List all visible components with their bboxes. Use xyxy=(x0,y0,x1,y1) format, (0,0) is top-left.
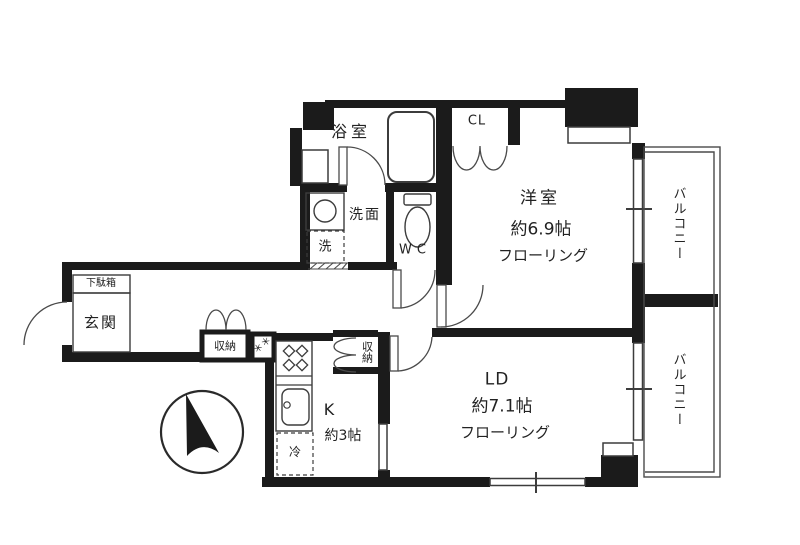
westernroom-door-leaf xyxy=(437,285,446,327)
ld-size: 約7.1帖 xyxy=(471,399,532,416)
cl-label: CL xyxy=(468,115,486,128)
wc-label: WC xyxy=(399,244,431,257)
westernroom-door-arc xyxy=(441,285,483,327)
vanity-box xyxy=(306,193,344,230)
toilet-bowl-icon xyxy=(405,207,430,247)
balcony-lower-label: バルコニー xyxy=(672,353,685,428)
ld-floor: フローリング xyxy=(460,426,550,441)
hall-storage-bifold-door xyxy=(206,310,246,330)
wc-door-leaf xyxy=(393,270,401,308)
bath-label: 浴室 xyxy=(331,124,371,140)
washing-machine-label: 洗 xyxy=(318,241,331,254)
wc-door-arc xyxy=(401,270,435,308)
western-room-name: 洋室 xyxy=(520,191,560,208)
kitchen-storage-label: 収納 xyxy=(362,341,373,363)
bath-door-arc xyxy=(347,147,385,185)
kitchen-name: K xyxy=(324,402,335,418)
bathtub-icon xyxy=(388,112,434,182)
window-ld-south xyxy=(490,479,585,486)
sink-icon xyxy=(314,200,336,222)
ld-name: LD xyxy=(485,372,510,389)
shoe-box-label: 下駄箱 xyxy=(86,279,116,289)
window-corner-notch xyxy=(603,443,633,456)
window-ld-balcony xyxy=(634,343,643,440)
western-room-size: 約6.9帖 xyxy=(510,222,571,239)
bath-door-leaf xyxy=(339,147,347,185)
kitchen-size: 約3帖 xyxy=(325,429,362,443)
floor-plan: 浴室 洗面 洗 WC CL 洋室 約6.9帖 フローリング LD 約7.1帖 フ… xyxy=(0,0,800,545)
balcony-upper-label: バルコニー xyxy=(672,187,685,262)
window-westernroom-balcony xyxy=(634,159,643,263)
washroom-sliding-door xyxy=(308,263,348,269)
ld-door-arc xyxy=(398,337,432,371)
entry-door-arc xyxy=(24,302,67,345)
toilet-tank-icon xyxy=(404,194,431,205)
hall-storage-label: 収納 xyxy=(214,341,236,352)
stove-burners-icon xyxy=(283,345,307,370)
kitchen-ld-opening xyxy=(379,424,387,470)
ld-door-leaf xyxy=(390,336,398,371)
window-top-right xyxy=(568,127,630,143)
kitchen-storage-bifold-door xyxy=(334,338,356,372)
north-compass-icon xyxy=(161,391,243,473)
western-room-floor: フローリング xyxy=(498,249,588,264)
floor-plan-drawing xyxy=(0,0,800,545)
washroom-label: 洗面 xyxy=(349,208,381,222)
faucet-icon xyxy=(284,402,290,408)
entrance-label: 玄関 xyxy=(84,316,118,331)
pipe-space-box xyxy=(302,150,328,183)
cl-bifold-door xyxy=(453,146,507,170)
fridge-label: 冷 xyxy=(289,446,301,458)
kitchen-sink-icon xyxy=(282,389,309,425)
